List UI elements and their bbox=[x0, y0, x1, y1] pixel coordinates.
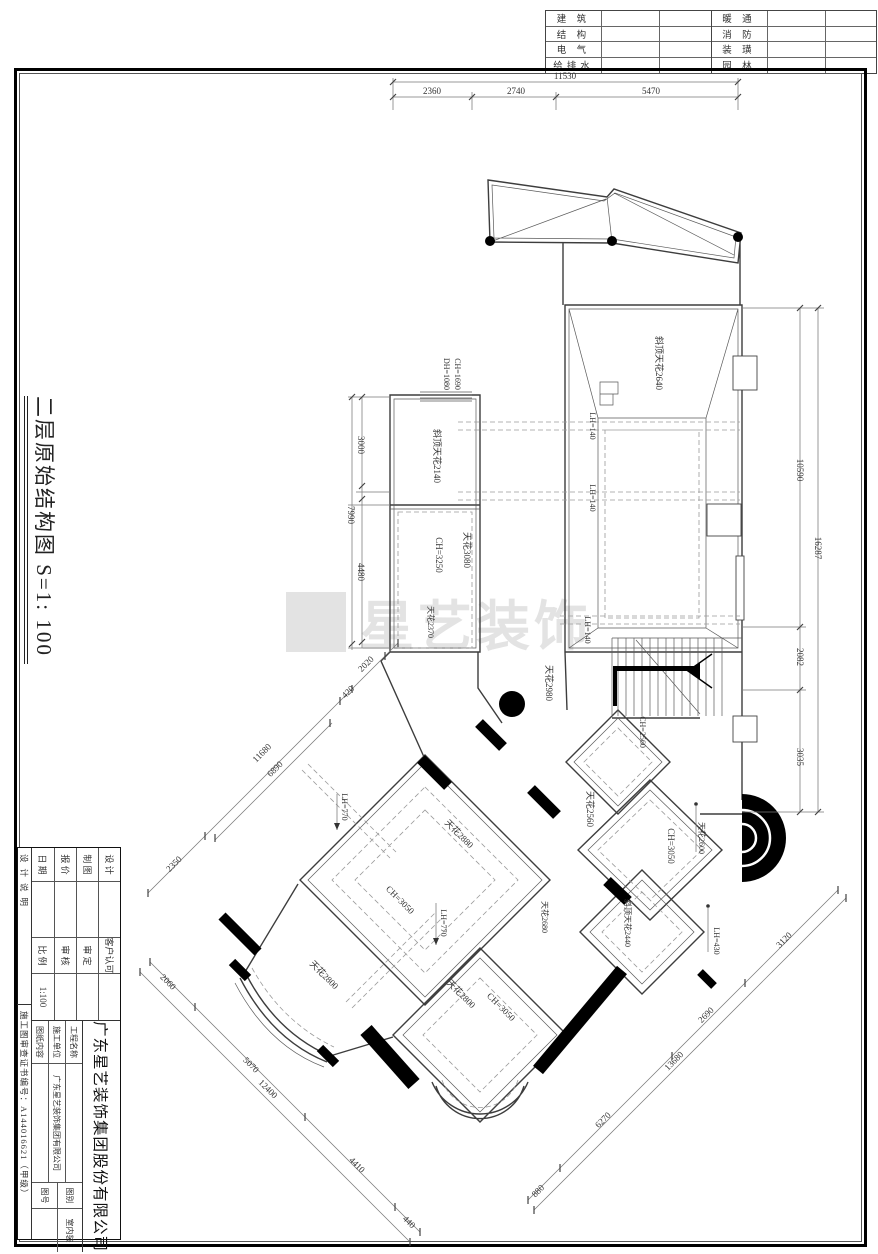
room-label: DH=1080 bbox=[442, 358, 451, 390]
project-labels: 工程名称 施工单位 图纸内容 bbox=[32, 1021, 82, 1064]
company-name: 广东星艺装饰集团股份有限公司 bbox=[82, 1021, 120, 1252]
dimension-text: 12400 bbox=[257, 1077, 280, 1100]
tb-value: 1:100 bbox=[32, 974, 54, 1020]
room-label: 斜顶天花2440 bbox=[623, 899, 633, 947]
tb-label: 设 计 bbox=[98, 848, 120, 882]
dimension-text: 5470 bbox=[642, 86, 661, 96]
room-label: LH=140 bbox=[588, 412, 597, 439]
floor-plan-sheet: 建 筑 结 构 电 气 给排水 暖 通 消 防 装 璜 园 林 星艺装饰 bbox=[0, 0, 878, 1254]
tb-label: 图号 bbox=[32, 1183, 57, 1209]
room-label: 天花2800 bbox=[445, 977, 479, 1011]
tb-label: 施工单位 bbox=[48, 1021, 65, 1063]
tb-value bbox=[76, 882, 98, 938]
tb-value: 室内装 bbox=[57, 1209, 82, 1252]
room-label: CH=3050 bbox=[384, 884, 417, 917]
title-block-signatures: 设 计 客户认可 制 图 审 定 报 价 审 核 日 期 比 例 1:100 bbox=[32, 848, 120, 1021]
tb-value: 广东星艺装饰集团有限公司 bbox=[48, 1064, 65, 1182]
room-label: LH=140 bbox=[588, 484, 597, 511]
tb-value bbox=[32, 882, 54, 938]
dimension-text: 2360 bbox=[423, 86, 442, 96]
dimension-text: 10590 bbox=[795, 459, 805, 482]
certificate-number: 施工图审查证书编号：A144016621（甲级） bbox=[17, 1005, 31, 1239]
room-label: 斜顶天花2640 bbox=[654, 336, 665, 391]
dimension-text: 16287 bbox=[813, 537, 823, 560]
tb-value bbox=[65, 1064, 82, 1182]
tb-label: 图纸内容 bbox=[32, 1021, 48, 1063]
room-label: 天花2600 bbox=[697, 822, 707, 854]
sheet-title: 二层原始结构图 S=1: 100 bbox=[24, 396, 82, 664]
tb-value bbox=[76, 974, 98, 1020]
tb-label: 审 核 bbox=[54, 938, 76, 974]
room-label: CH=3050 bbox=[485, 991, 518, 1024]
structural-columns bbox=[707, 356, 757, 742]
room-label: 天花2980 bbox=[544, 665, 555, 702]
dimension-text: 3120 bbox=[774, 930, 794, 950]
tb-label: 审 定 bbox=[76, 938, 98, 974]
room-label: CH=3050 bbox=[666, 828, 676, 864]
dimension-text: 2082 bbox=[795, 648, 805, 666]
title-block-project: 工程名称 施工单位 图纸内容 广东星艺装饰集团有限公司 图别 室内装 图号 bbox=[32, 1021, 82, 1252]
dimension-text: 880 bbox=[530, 1182, 547, 1199]
dimension-text: 6890 bbox=[265, 759, 285, 779]
tb-label: 报 价 bbox=[54, 848, 76, 882]
room-label: LH=140 bbox=[583, 616, 592, 643]
room-label: 天花2680 bbox=[540, 901, 550, 933]
project-values: 广东星艺装饰集团有限公司 bbox=[32, 1064, 82, 1183]
tb-label: 比 例 bbox=[32, 938, 54, 974]
room-label: 斜顶天花2140 bbox=[432, 429, 443, 484]
solid-walls bbox=[222, 232, 786, 1084]
dimension-text: 11530 bbox=[554, 71, 577, 81]
dimension-text: 440 bbox=[401, 1214, 418, 1231]
room-label: 天花2800 bbox=[308, 958, 342, 992]
title-block-main: 设 计 客户认可 制 图 审 定 报 价 审 核 日 期 比 例 1:100 广… bbox=[31, 848, 120, 1239]
dimension-text: 6270 bbox=[593, 1110, 613, 1130]
tb-value bbox=[98, 882, 120, 938]
tb-value bbox=[54, 882, 76, 938]
dimension-text: 2060 bbox=[158, 972, 178, 992]
room-label: CH=1690 bbox=[453, 358, 462, 390]
tb-value bbox=[32, 1064, 48, 1182]
dimension-text: 2690 bbox=[696, 1005, 716, 1025]
tb-label: 图别 bbox=[57, 1183, 82, 1209]
room-label: LH=770 bbox=[439, 909, 448, 936]
room-label: 天花2560 bbox=[585, 791, 596, 828]
tb-label: 日 期 bbox=[32, 848, 54, 882]
dimension-text: 2350 bbox=[164, 854, 184, 874]
title-block: 设 计 客户认可 制 图 审 定 报 价 审 核 日 期 比 例 1:100 广… bbox=[17, 847, 121, 1240]
dimension-text: 11680 bbox=[251, 741, 274, 764]
title-block-right: 广东星艺装饰集团股份有限公司 工程名称 施工单位 图纸内容 广东星艺装饰集团有限… bbox=[32, 1021, 120, 1252]
title-block-notes: 设计说明 施工图审查证书编号：A144016621（甲级） bbox=[17, 848, 31, 1239]
design-notes-label: 设计说明 bbox=[17, 848, 31, 1005]
dimension-text: 5070 bbox=[241, 1055, 261, 1075]
room-label: CH=2560 bbox=[638, 716, 647, 748]
wall-inner-lines bbox=[235, 185, 742, 1112]
dimension-text: 7990 bbox=[346, 506, 356, 525]
dimension-text: 3035 bbox=[795, 748, 805, 767]
dimension-text: 3000 bbox=[356, 436, 366, 455]
room-label: LH=430 bbox=[712, 927, 721, 954]
room-label: 天花3080 bbox=[462, 532, 473, 569]
room-label: LH=770 bbox=[340, 793, 349, 820]
leader-marks bbox=[334, 802, 710, 945]
room-label: 天花2370 bbox=[426, 606, 436, 638]
drawing-no-cells: 图别 室内装 图号 bbox=[32, 1183, 82, 1252]
dimension-text: 13680 bbox=[662, 1049, 685, 1072]
tb-value bbox=[54, 974, 76, 1020]
room-label: CH=3250 bbox=[434, 537, 444, 573]
tb-value bbox=[32, 1209, 57, 1252]
tb-label: 制 图 bbox=[76, 848, 98, 882]
dimension-text: 4410 bbox=[347, 1155, 367, 1175]
dimension-text: 2740 bbox=[507, 86, 526, 96]
dimension-text: 420 bbox=[340, 683, 357, 700]
tb-label: 客户认可 bbox=[98, 938, 120, 974]
wall-lines bbox=[240, 180, 742, 1122]
dimension-text: 2020 bbox=[356, 654, 376, 674]
dimension-text: 4480 bbox=[356, 563, 366, 582]
tb-value bbox=[98, 974, 120, 1020]
floor-plan-drawing: 1153023602740547010590162872082303530007… bbox=[0, 0, 878, 1254]
tb-label: 工程名称 bbox=[65, 1021, 82, 1063]
